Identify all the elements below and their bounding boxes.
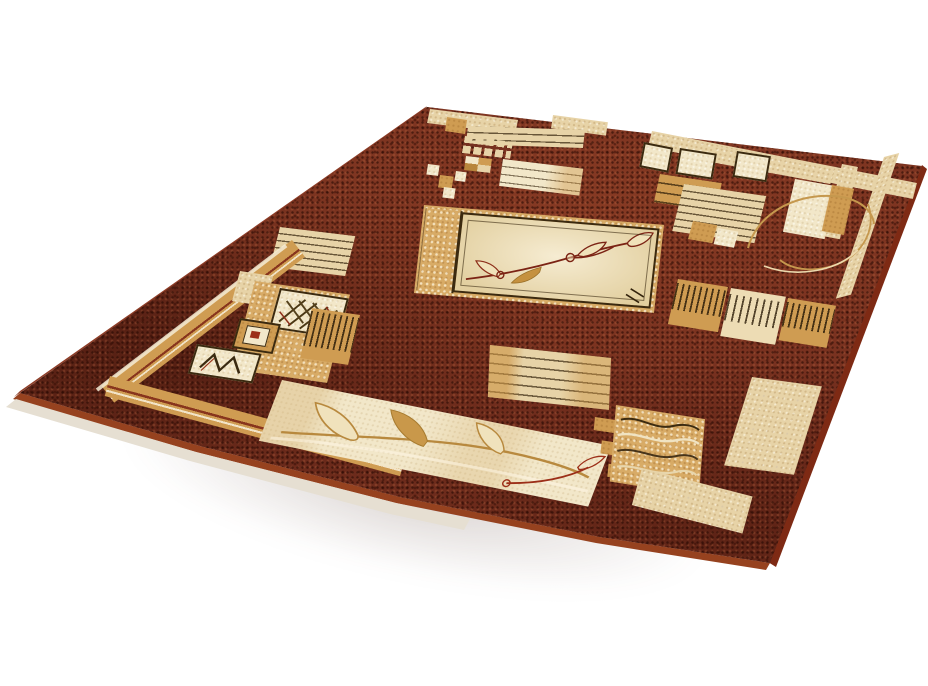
pixel-square-1 (426, 164, 439, 176)
diamond-eye-square (232, 318, 281, 354)
small-outlined-square-2 (675, 148, 716, 180)
far-edge-gold-square (445, 117, 467, 134)
checker-square (464, 156, 492, 173)
pixel-square-4 (442, 187, 455, 199)
barcode-block-3 (779, 298, 836, 348)
ladder-step-1 (594, 417, 615, 433)
small-outlined-square-1 (639, 142, 673, 173)
product-photo-stage (0, 0, 928, 686)
barcode-block-1 (668, 279, 728, 332)
loop-curves-graphic (740, 178, 880, 283)
diamond-eye-center (250, 331, 261, 339)
small-cream-square (714, 228, 739, 248)
barcode-block-2 (720, 288, 786, 345)
pixel-square-3 (455, 171, 467, 182)
medallion-core (452, 212, 659, 308)
small-gold-square (688, 221, 717, 243)
loop-curves (740, 178, 880, 283)
